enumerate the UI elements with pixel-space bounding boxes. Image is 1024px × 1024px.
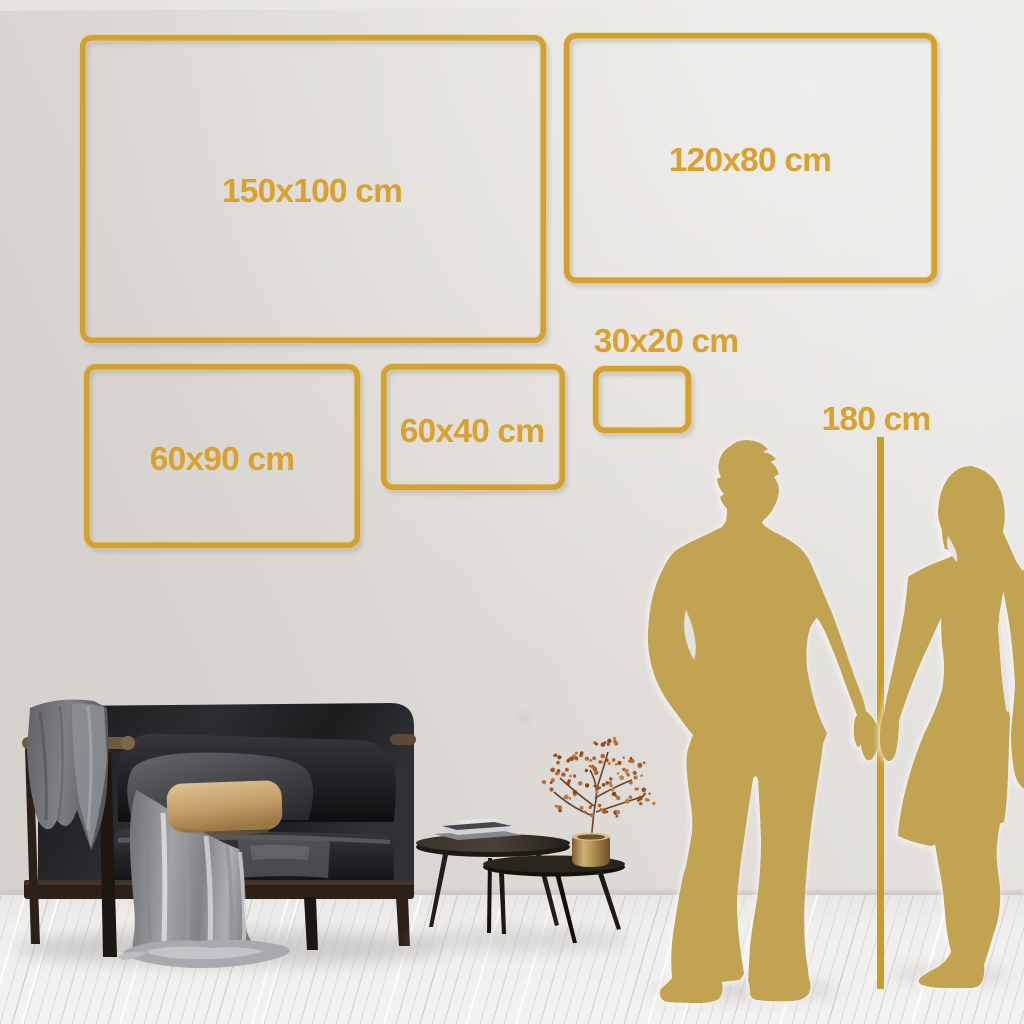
svg-text:180 cm: 180 cm (822, 401, 931, 438)
svg-text:120x80 cm: 120x80 cm (669, 142, 831, 179)
svg-text:30x20 cm: 30x20 cm (594, 323, 738, 360)
svg-text:60x40 cm: 60x40 cm (400, 413, 544, 450)
svg-text:60x90 cm: 60x90 cm (150, 441, 294, 478)
svg-text:150x100 cm: 150x100 cm (222, 173, 402, 210)
